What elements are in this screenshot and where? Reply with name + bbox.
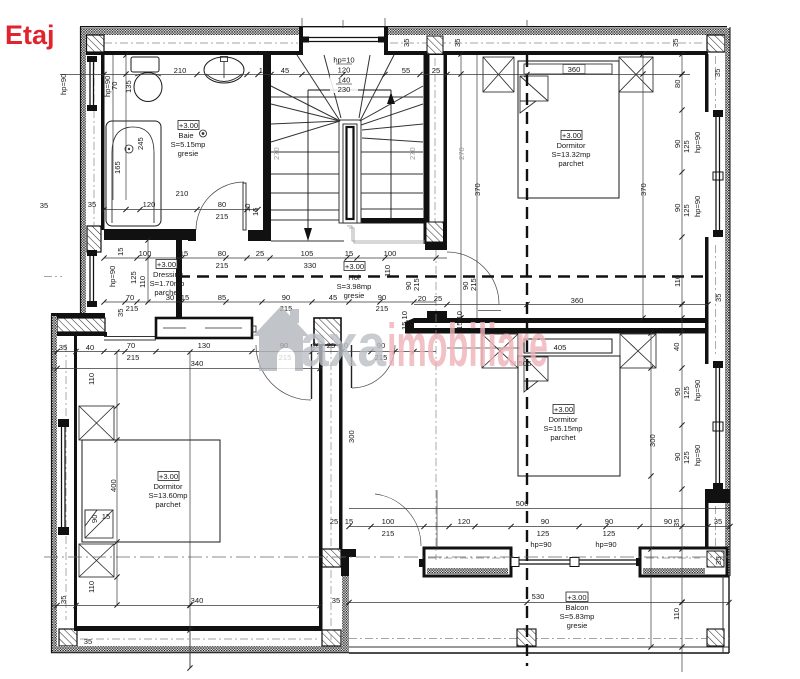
svg-text:90: 90 <box>541 517 549 526</box>
svg-text:80: 80 <box>673 80 682 88</box>
svg-text:hp=90: hp=90 <box>530 540 551 549</box>
svg-text:45: 45 <box>281 66 289 75</box>
svg-text:S=5.83mp: S=5.83mp <box>560 612 595 621</box>
svg-text:100: 100 <box>382 517 395 526</box>
svg-text:Baie: Baie <box>178 131 193 140</box>
svg-text:90: 90 <box>673 204 682 212</box>
svg-text:125: 125 <box>682 386 691 399</box>
svg-text:110: 110 <box>383 265 392 277</box>
svg-text:90: 90 <box>90 515 99 523</box>
svg-text:S=5.15mp: S=5.15mp <box>171 140 206 149</box>
svg-text:35: 35 <box>332 596 340 605</box>
svg-text:125: 125 <box>537 529 550 538</box>
svg-text:110: 110 <box>87 581 96 593</box>
svg-text:parchet: parchet <box>155 500 181 509</box>
svg-text:245: 245 <box>136 137 145 150</box>
svg-text:100: 100 <box>384 249 397 258</box>
svg-text:40: 40 <box>672 343 681 351</box>
svg-text:15: 15 <box>181 293 189 302</box>
svg-text:15: 15 <box>116 248 125 256</box>
svg-text:Dormitor: Dormitor <box>556 141 586 150</box>
svg-text:35: 35 <box>40 201 48 210</box>
svg-text:140: 140 <box>338 76 351 85</box>
svg-text:25: 25 <box>256 249 264 258</box>
svg-text:360: 360 <box>571 296 584 305</box>
svg-text:110: 110 <box>673 275 682 287</box>
svg-text:55: 55 <box>402 66 410 75</box>
svg-text:125: 125 <box>682 140 691 153</box>
svg-text:Balcon: Balcon <box>565 603 588 612</box>
svg-text:125: 125 <box>129 271 138 284</box>
svg-text:270: 270 <box>457 147 466 160</box>
svg-text:S=3.98mp: S=3.98mp <box>337 282 372 291</box>
svg-text:+3.00: +3.00 <box>179 121 198 130</box>
svg-text:35: 35 <box>713 69 722 77</box>
svg-text:35: 35 <box>88 200 96 209</box>
svg-text:85: 85 <box>218 293 226 302</box>
svg-text:hp=10: hp=10 <box>333 56 354 65</box>
svg-text:+3.00: +3.00 <box>567 593 586 602</box>
svg-text:S=13.32mp: S=13.32mp <box>551 150 590 159</box>
svg-text:110: 110 <box>138 276 147 288</box>
svg-text:215: 215 <box>469 278 478 291</box>
svg-text:hp=90: hp=90 <box>595 540 616 549</box>
svg-text:30: 30 <box>166 293 174 302</box>
svg-text:370: 370 <box>473 183 482 196</box>
svg-text:110: 110 <box>87 373 96 385</box>
svg-text:Hol: Hol <box>348 273 360 282</box>
svg-text:+3.00: +3.00 <box>159 472 178 481</box>
svg-text:125: 125 <box>682 204 691 217</box>
svg-text:S=15.15mp: S=15.15mp <box>543 424 582 433</box>
svg-text:35: 35 <box>59 343 67 352</box>
svg-text:35: 35 <box>84 637 92 646</box>
svg-text:120: 120 <box>458 517 471 526</box>
svg-text:+3.00: +3.00 <box>562 131 581 140</box>
svg-text:Dressing: Dressing <box>153 270 183 279</box>
svg-text:35: 35 <box>714 557 723 565</box>
svg-text:300: 300 <box>347 430 356 443</box>
svg-text:80: 80 <box>218 249 226 258</box>
svg-text:35: 35 <box>116 309 125 317</box>
svg-text:165: 165 <box>113 161 122 174</box>
svg-text:hp=90: hp=90 <box>693 132 702 153</box>
svg-text:125: 125 <box>603 529 616 538</box>
svg-text:hp=90: hp=90 <box>108 266 117 287</box>
svg-text:506: 506 <box>516 499 529 508</box>
svg-text:405: 405 <box>554 343 567 352</box>
svg-text:15: 15 <box>345 517 353 526</box>
svg-text:340: 340 <box>191 596 204 605</box>
svg-text:S=1.70mp: S=1.70mp <box>150 279 185 288</box>
svg-text:Dormitor: Dormitor <box>153 482 183 491</box>
svg-text:215: 215 <box>126 304 139 313</box>
svg-text:35: 35 <box>59 596 68 604</box>
svg-text:70: 70 <box>127 341 135 350</box>
svg-text:90: 90 <box>673 453 682 461</box>
svg-text:35: 35 <box>453 39 462 47</box>
svg-text:25: 25 <box>434 294 442 303</box>
svg-text:S=13.60mp: S=13.60mp <box>148 491 187 500</box>
svg-text:90: 90 <box>605 517 613 526</box>
svg-text:530: 530 <box>532 592 545 601</box>
svg-text:370: 370 <box>639 183 648 196</box>
svg-text:125: 125 <box>682 451 691 464</box>
svg-text:210: 210 <box>174 66 187 75</box>
svg-text:230: 230 <box>338 85 351 94</box>
svg-text:35: 35 <box>672 519 681 527</box>
svg-text:135: 135 <box>124 80 133 93</box>
svg-text:360: 360 <box>568 65 581 74</box>
svg-text:270: 270 <box>408 147 417 160</box>
svg-text:25: 25 <box>330 517 338 526</box>
svg-text:15: 15 <box>259 66 267 75</box>
svg-text:340: 340 <box>191 359 204 368</box>
svg-text:gresie: gresie <box>344 291 365 300</box>
svg-text:35: 35 <box>402 39 411 47</box>
svg-text:hp=90: hp=90 <box>693 380 702 401</box>
svg-text:215: 215 <box>216 212 229 221</box>
svg-text:35: 35 <box>714 517 722 526</box>
svg-text:40: 40 <box>86 343 94 352</box>
svg-text:215: 215 <box>216 261 229 270</box>
svg-text:215: 215 <box>127 353 140 362</box>
svg-text:130: 130 <box>198 341 211 350</box>
svg-text:+3.00: +3.00 <box>157 260 176 269</box>
svg-text:parchet: parchet <box>558 159 584 168</box>
svg-text:hp=90: hp=90 <box>693 196 702 217</box>
svg-text:+3.00: +3.00 <box>345 262 364 271</box>
svg-text:110: 110 <box>672 608 681 620</box>
svg-text:Dormitor: Dormitor <box>548 415 578 424</box>
svg-text:215: 215 <box>412 278 421 291</box>
svg-text:35: 35 <box>671 39 680 47</box>
svg-text:90: 90 <box>673 388 682 396</box>
svg-text:gresie: gresie <box>178 149 199 158</box>
svg-text:330: 330 <box>304 261 317 270</box>
svg-text:270: 270 <box>272 147 281 160</box>
svg-text:70: 70 <box>110 82 119 90</box>
svg-text:215: 215 <box>382 529 395 538</box>
svg-text:105: 105 <box>301 249 314 258</box>
svg-text:hp=90: hp=90 <box>693 445 702 466</box>
svg-text:20: 20 <box>418 294 426 303</box>
svg-text:+3.00: +3.00 <box>554 405 573 414</box>
svg-text:imobiliare: imobiliare <box>387 312 548 379</box>
svg-text:300: 300 <box>648 434 657 447</box>
svg-text:25: 25 <box>432 66 440 75</box>
svg-text:45: 45 <box>329 293 337 302</box>
svg-text:210: 210 <box>176 189 189 198</box>
svg-text:parchet: parchet <box>550 433 576 442</box>
svg-text:120: 120 <box>143 200 156 209</box>
svg-text:35: 35 <box>714 294 723 302</box>
svg-text:Etaj: Etaj <box>5 20 55 50</box>
svg-text:90: 90 <box>673 140 682 148</box>
svg-text:400: 400 <box>109 479 118 492</box>
svg-text:90: 90 <box>664 517 672 526</box>
svg-text:gresie: gresie <box>567 621 588 630</box>
svg-text:15: 15 <box>102 512 110 521</box>
svg-text:90: 90 <box>282 293 290 302</box>
svg-text:hp=90: hp=90 <box>59 74 68 95</box>
svg-text:axa: axa <box>300 312 387 379</box>
svg-text:80: 80 <box>218 200 226 209</box>
